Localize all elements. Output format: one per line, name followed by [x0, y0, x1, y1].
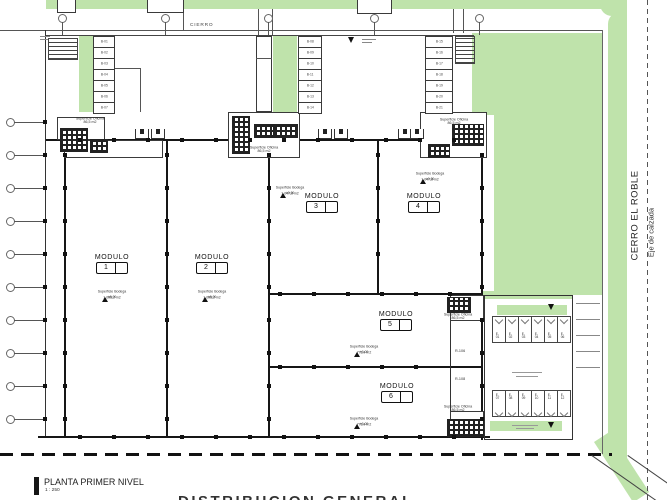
- module-number-box: 1: [96, 262, 128, 274]
- module-number: 4: [409, 202, 428, 212]
- office-area-note: Superficie Oficina86,5 m2: [444, 405, 473, 412]
- fence-tie-line: [463, 9, 464, 33]
- module-area-note-5: ±0,00 Superficie Bodega 772,4 m2: [336, 339, 392, 357]
- parking-stall: E-12: [557, 390, 571, 417]
- column-tick: [267, 219, 271, 223]
- front-court-wall: [140, 68, 141, 112]
- column-tick: [480, 417, 484, 421]
- front-narrow-room: [256, 36, 272, 112]
- wc-core-hatch: [452, 124, 484, 146]
- wc-core-hatch: [60, 128, 88, 152]
- fence-tie-line: [272, 9, 273, 35]
- access-arrow-icon: [548, 304, 554, 310]
- module-label-1: MODULO 1: [84, 254, 140, 274]
- module-number: 1: [97, 263, 116, 273]
- stair-hatch: [455, 36, 475, 64]
- column-tick: [165, 417, 169, 421]
- module-name: MODULO: [396, 193, 452, 200]
- room-label: B-08: [307, 40, 314, 43]
- area-caption: Superficie Bodega: [274, 186, 306, 189]
- stall-mark-icon: [521, 316, 529, 324]
- stall-label: E-05: [548, 333, 555, 340]
- room-label: B-13: [307, 95, 314, 98]
- column-tick: [180, 138, 184, 142]
- stall-mark-icon: [508, 409, 516, 417]
- note-mark: [362, 42, 372, 43]
- grid-leader-line: [374, 22, 375, 35]
- column-tick: [248, 435, 252, 439]
- module-label-6: MODULO 6: [369, 383, 425, 403]
- wall-south: [38, 436, 490, 438]
- column-tick: [43, 285, 47, 289]
- module-label-2: MODULO 2: [184, 254, 240, 274]
- column-tick: [316, 138, 320, 142]
- column-tick: [248, 138, 252, 142]
- grid-leader-line: [14, 188, 44, 189]
- column-tick: [480, 219, 484, 223]
- column-tick: [312, 292, 316, 296]
- wc-core-hatch: [274, 124, 298, 138]
- module-number-box: 5: [380, 319, 412, 331]
- column-tick: [376, 252, 380, 256]
- grid-leader-line: [14, 386, 44, 387]
- dock-door: [334, 129, 348, 139]
- fence-tie-line: [258, 9, 259, 35]
- property-line-bottom: [0, 453, 612, 456]
- module-name: MODULO: [369, 383, 425, 390]
- column-tick: [112, 435, 116, 439]
- column-tick: [418, 435, 422, 439]
- area-caption: Superficie Bodega: [96, 290, 128, 293]
- stall-label: E-04: [535, 333, 542, 340]
- wc-core-hatch: [447, 297, 471, 313]
- stall-mark-icon: [547, 316, 555, 324]
- area-caption: Superficie Bodega: [196, 290, 228, 293]
- grid-leader-line: [14, 155, 44, 156]
- module-box-cell: [428, 202, 439, 212]
- room-label: B-14: [307, 106, 314, 109]
- area-value: 772,4 m2: [348, 351, 380, 354]
- storage-room: B-21: [425, 102, 453, 114]
- wall-east: [481, 140, 483, 440]
- column-tick: [165, 219, 169, 223]
- room-label: B-05: [101, 84, 108, 87]
- area-value: 1.095,2 m2: [96, 296, 128, 299]
- column-tick: [267, 285, 271, 289]
- module-name: MODULO: [84, 254, 140, 261]
- plan-scale: 1 : 250: [45, 488, 60, 493]
- parking-stall: E-03: [518, 316, 532, 343]
- office-area-note: Superficie Oficina86,5 m2: [437, 118, 471, 125]
- room-label: B-20: [436, 95, 443, 98]
- stall-mark-icon: [495, 409, 503, 417]
- stall-label: E-07: [496, 394, 503, 401]
- stall-label: E-09: [522, 394, 529, 401]
- column-tick: [78, 138, 82, 142]
- area-value: 1.047,6 m2: [414, 178, 446, 181]
- parking-wall-right: [572, 295, 573, 440]
- column-tick: [180, 435, 184, 439]
- module-label-5: MODULO 5: [368, 311, 424, 331]
- column-tick: [43, 351, 47, 355]
- column-tick: [63, 318, 67, 322]
- parking-wall-left: [484, 295, 485, 440]
- room-label: B-16: [436, 51, 443, 54]
- title-block-bar: [34, 477, 39, 495]
- stall-label: E-02: [509, 333, 516, 340]
- parking-stall: E-10: [531, 390, 545, 417]
- street-name-label: CERRO EL ROBLE: [630, 161, 641, 271]
- parking-aisle-mark: [512, 372, 542, 373]
- column-tick: [267, 186, 271, 190]
- module-number-box: 3: [306, 201, 338, 213]
- floor-plan-canvas: CIERRO CERRO EL ROBLE Eje de calzada MOD…: [0, 0, 667, 500]
- column-tick: [384, 138, 388, 142]
- ramp-hatch-line: [576, 319, 600, 320]
- green-area-main: [494, 33, 602, 295]
- column-tick: [146, 435, 150, 439]
- room-label: B-03: [101, 62, 108, 65]
- column-tick: [278, 365, 282, 369]
- module-area-note-6: ±0,00 Superficie Bodega 772,4 m2: [336, 411, 392, 429]
- column-tick: [452, 435, 456, 439]
- column-tick: [112, 138, 116, 142]
- parking-stall: E-05: [544, 316, 558, 343]
- fence-label: CIERRO: [190, 23, 213, 29]
- office-area-note: Superficie Oficina86,5 m2: [247, 146, 281, 153]
- room-label: B-19: [436, 84, 443, 87]
- module-area-note-1: ±0,00 Superficie Bodega 1.095,2 m2: [84, 284, 140, 302]
- column-tick: [480, 252, 484, 256]
- column-tick: [480, 384, 484, 388]
- ramp-hatch-line: [576, 335, 600, 336]
- column-tick: [480, 285, 484, 289]
- column-tick: [380, 292, 384, 296]
- column-tick: [312, 365, 316, 369]
- room-label: B-21: [436, 106, 443, 109]
- module-number: 3: [307, 202, 326, 212]
- grid-leader-line: [14, 122, 44, 123]
- column-tick: [43, 219, 47, 223]
- stall-mark-icon: [495, 316, 503, 324]
- column-tick: [165, 384, 169, 388]
- grid-leader-line: [14, 254, 44, 255]
- storage-room: B-14: [298, 102, 322, 114]
- column-tick: [165, 285, 169, 289]
- column-tick: [278, 292, 282, 296]
- column-tick: [282, 435, 286, 439]
- note-mark: [40, 36, 50, 37]
- module-name: MODULO: [368, 311, 424, 318]
- parking-stall: E-06: [557, 316, 571, 343]
- column-tick: [267, 417, 271, 421]
- grid-leader-line: [165, 22, 166, 35]
- column-tick: [43, 417, 47, 421]
- grid-leader-line: [14, 320, 44, 321]
- column-tick: [43, 153, 47, 157]
- column-tick: [165, 186, 169, 190]
- green-area-lobe: [472, 33, 496, 115]
- column-tick: [267, 252, 271, 256]
- stall-mark-icon: [521, 409, 529, 417]
- module-box-cell: [216, 263, 227, 273]
- grid-leader-line: [62, 22, 63, 35]
- wc-core-hatch: [90, 139, 108, 153]
- column-tick: [480, 153, 484, 157]
- street-axis-label: Eje de calzada: [647, 178, 656, 288]
- column-tick: [43, 318, 47, 322]
- parking-entry-mark: [512, 425, 538, 426]
- area-caption: Superficie Bodega: [414, 172, 446, 175]
- stall-label: E-03: [522, 333, 529, 340]
- column-tick: [214, 138, 218, 142]
- green-strip-top: [46, 0, 602, 9]
- stall-label: E-10: [535, 394, 542, 401]
- site-line-right: [602, 30, 603, 454]
- column-tick: [63, 384, 67, 388]
- fence-gate-notch: [147, 0, 184, 13]
- access-arrow-icon: [548, 422, 554, 428]
- column-tick: [267, 153, 271, 157]
- parking-stall: E-11: [544, 390, 558, 417]
- module-box-cell: [400, 320, 411, 330]
- parking-wall-top: [484, 295, 573, 296]
- front-narrow-room-divider: [256, 58, 272, 59]
- module-number: 5: [381, 320, 400, 330]
- room-label: B-06: [101, 95, 108, 98]
- ramp-label: R-108: [455, 377, 465, 381]
- site-line-top: [0, 30, 603, 31]
- module-number-box: 4: [408, 201, 440, 213]
- column-tick: [376, 153, 380, 157]
- dock-door: [151, 129, 165, 139]
- grid-leader-line: [479, 22, 480, 35]
- room-label: B-12: [307, 84, 314, 87]
- area-caption: Superficie Bodega: [348, 417, 380, 420]
- sheet-title: DISTRIBUCION GENERAL: [178, 493, 414, 500]
- stall-label: E-06: [561, 333, 568, 340]
- column-tick: [43, 384, 47, 388]
- column-tick: [350, 435, 354, 439]
- column-tick: [165, 252, 169, 256]
- stall-label: E-11: [548, 394, 555, 401]
- grid-leader-line: [14, 221, 44, 222]
- room-label: B-18: [436, 73, 443, 76]
- room-label: B-07: [101, 106, 108, 109]
- access-arrow-icon: [348, 37, 354, 43]
- column-tick: [380, 365, 384, 369]
- column-tick: [43, 186, 47, 190]
- column-tick: [43, 120, 47, 124]
- stair-hatch: [48, 38, 78, 60]
- column-tick: [480, 186, 484, 190]
- parking-stall: E-01: [492, 316, 506, 343]
- ramp-hatch-line: [576, 367, 600, 368]
- column-tick: [384, 435, 388, 439]
- module-number: 2: [197, 263, 216, 273]
- room-label: B-15: [436, 40, 443, 43]
- parking-entry-mark: [516, 428, 534, 429]
- column-tick: [63, 219, 67, 223]
- column-tick: [350, 138, 354, 142]
- column-tick: [63, 351, 67, 355]
- column-tick: [214, 435, 218, 439]
- column-tick: [418, 138, 422, 142]
- column-tick: [414, 365, 418, 369]
- wall-module3-4: [377, 140, 379, 295]
- column-tick: [267, 384, 271, 388]
- fence-gate-notch: [357, 0, 392, 14]
- parking-stall: E-08: [505, 390, 519, 417]
- wall-left-site: [45, 30, 46, 437]
- parking-aisle-mark: [516, 376, 538, 377]
- front-court-wall: [115, 68, 140, 69]
- parking-stall: E-07: [492, 390, 506, 417]
- wc-core-hatch: [428, 144, 450, 158]
- parking-wall-bottom: [484, 439, 573, 440]
- stall-mark-icon: [560, 409, 568, 417]
- area-value: 1.047,6 m2: [274, 192, 306, 195]
- note-mark: [362, 39, 376, 40]
- module-box-cell: [326, 202, 337, 212]
- stall-label: E-12: [561, 394, 568, 401]
- stall-mark-icon: [547, 409, 555, 417]
- column-tick: [63, 153, 67, 157]
- column-tick: [43, 252, 47, 256]
- column-tick: [165, 153, 169, 157]
- module-name: MODULO: [184, 254, 240, 261]
- column-tick: [480, 318, 484, 322]
- column-tick: [63, 417, 67, 421]
- column-tick: [146, 138, 150, 142]
- module-box-cell: [116, 263, 127, 273]
- column-tick: [267, 318, 271, 322]
- module-number: 6: [382, 392, 401, 402]
- column-tick: [282, 138, 286, 142]
- area-value: 772,4 m2: [348, 423, 380, 426]
- room-label: B-17: [436, 62, 443, 65]
- column-tick: [452, 138, 456, 142]
- column-tick: [448, 292, 452, 296]
- parking-stall: E-09: [518, 390, 532, 417]
- area-caption: Superficie Bodega: [348, 345, 380, 348]
- column-tick: [376, 186, 380, 190]
- green-parking-top: [497, 305, 567, 315]
- ramp-hatch-line: [576, 303, 600, 304]
- wc-core-hatch: [254, 124, 274, 138]
- room-label: B-02: [101, 51, 108, 54]
- green-band-right: [608, 12, 627, 460]
- room-label: B-11: [307, 73, 314, 76]
- module-number-box: 2: [196, 262, 228, 274]
- column-tick: [78, 435, 82, 439]
- storage-room: B-07: [93, 102, 115, 114]
- dock-door: [318, 129, 332, 139]
- area-value: 1.095,2 m2: [196, 296, 228, 299]
- grid-leader-line: [14, 353, 44, 354]
- stall-mark-icon: [560, 316, 568, 324]
- stall-label: E-01: [496, 333, 503, 340]
- module-label-4: MODULO 4: [396, 193, 452, 213]
- grid-leader-line: [14, 287, 44, 288]
- column-tick: [316, 435, 320, 439]
- ramp-label: R-106: [455, 349, 465, 353]
- column-tick: [63, 252, 67, 256]
- column-tick: [376, 219, 380, 223]
- column-tick: [414, 292, 418, 296]
- fence-gate-notch: [57, 0, 76, 13]
- column-tick: [165, 351, 169, 355]
- stall-label: E-08: [509, 394, 516, 401]
- stall-mark-icon: [534, 409, 542, 417]
- module-number-box: 6: [381, 391, 413, 403]
- column-tick: [165, 318, 169, 322]
- column-tick: [346, 365, 350, 369]
- column-tick: [480, 351, 484, 355]
- office-area-note: Superficie Oficina86,5 m2: [444, 313, 473, 320]
- parking-stall: E-02: [505, 316, 519, 343]
- module-area-note-4: ±0,00 Superficie Bodega 1.047,6 m2: [402, 166, 458, 184]
- green-front-strip-a: [79, 36, 93, 112]
- column-tick: [346, 292, 350, 296]
- room-label: B-10: [307, 62, 314, 65]
- parking-stall: E-04: [531, 316, 545, 343]
- office-area-note: Superficie Oficina86,5 m2: [76, 117, 105, 124]
- room-label: B-01: [101, 40, 108, 43]
- module-area-note-2: ±0,00 Superficie Bodega 1.095,2 m2: [184, 284, 240, 302]
- fence-tie-line: [183, 13, 184, 30]
- stall-mark-icon: [508, 316, 516, 324]
- green-front-strip-b: [273, 36, 297, 112]
- room-label: B-04: [101, 73, 108, 76]
- room-label: B-09: [307, 51, 314, 54]
- fence-tie-line: [453, 9, 454, 33]
- stall-mark-icon: [534, 316, 542, 324]
- grid-leader-line: [14, 419, 44, 420]
- column-tick: [267, 351, 271, 355]
- grid-leader-line: [268, 22, 269, 35]
- plan-title: PLANTA PRIMER NIVEL: [44, 477, 144, 487]
- module-box-cell: [401, 392, 412, 402]
- note-mark: [40, 39, 48, 40]
- column-tick: [63, 186, 67, 190]
- ramp-hatch-line: [576, 351, 600, 352]
- column-tick: [63, 285, 67, 289]
